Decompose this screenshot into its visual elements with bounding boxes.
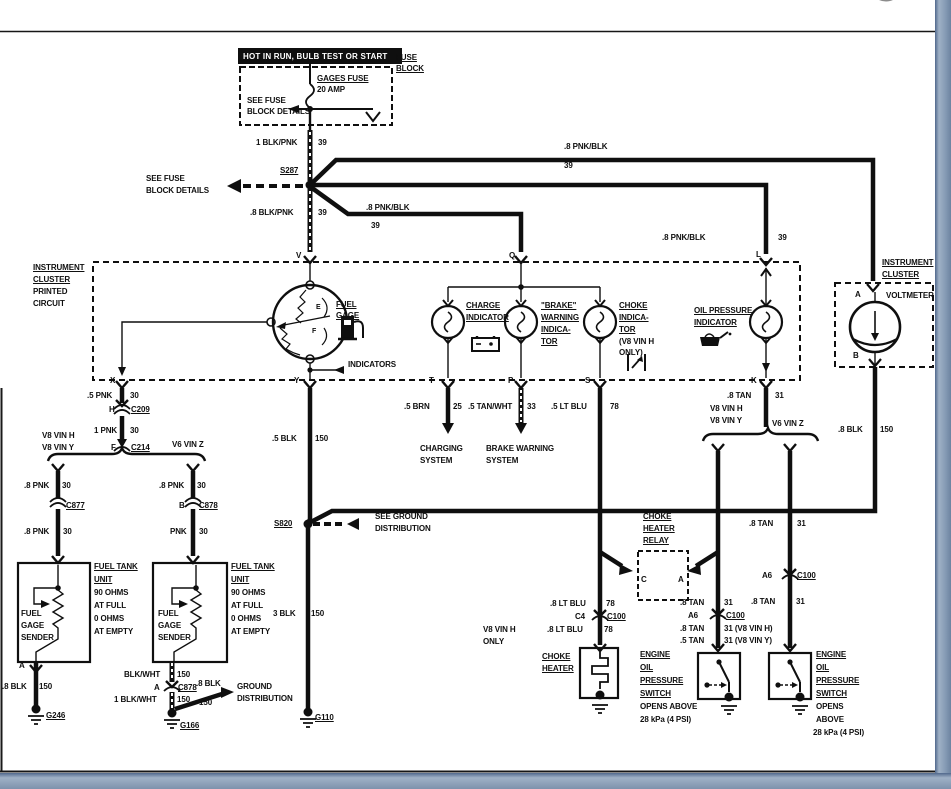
oil-can-icon [700, 332, 731, 346]
arrow-see-ground [347, 518, 359, 530]
battery-icon [472, 336, 499, 351]
wire-pnkblk-q [312, 188, 521, 252]
oil-pressure-switch-1 [698, 653, 740, 714]
arrow-relay-a [687, 564, 701, 575]
arrow-see-fuse-inner [288, 105, 299, 113]
ground-g246-symbol [28, 716, 44, 724]
voltmeter-symbol [835, 283, 933, 367]
arrow-charging-system [442, 423, 454, 434]
charge-indicator-bulb [432, 300, 464, 378]
oil-pressure-switch-2 [769, 653, 811, 714]
conn-c878b-symbol [164, 687, 180, 691]
close-icon [868, 0, 904, 18]
conn-c877-symbol [50, 498, 66, 507]
choke-heater-relay-box [638, 551, 688, 600]
arrow-ground-distribution [221, 687, 234, 698]
wiring-diagram-page: HOT IN RUN, BULB TEST OR STARTFUSEBLOCKG… [0, 0, 951, 789]
brake-indicator-bulb [505, 300, 537, 378]
fuel-tank-unit-2 [153, 563, 227, 662]
arrow-see-fuse-details [227, 179, 241, 193]
schematic [18, 48, 933, 728]
vin-split-brace-right [703, 428, 818, 441]
close-button[interactable] [868, 0, 904, 18]
choke-switch-icon [628, 354, 645, 371]
ground-g110-symbol [300, 719, 316, 727]
fuse-block-connector [366, 112, 380, 121]
fuse-symbol [306, 84, 314, 108]
banner-box [238, 48, 402, 64]
splice-s820-dot [304, 520, 313, 529]
vin-split-brace-left [48, 448, 205, 461]
choke-heater-symbol [580, 648, 618, 713]
arrow-brake-system [515, 423, 527, 434]
cluster-box [93, 262, 800, 380]
conn-c878-symbol [185, 498, 201, 507]
choke-indicator-bulb [584, 300, 616, 378]
ground-g166-symbol [164, 720, 180, 728]
oil-pressure-bulb [750, 268, 782, 378]
fuel-gauge-symbol [267, 262, 347, 381]
arrow-relay-c [619, 564, 633, 575]
wiring-svg [0, 0, 951, 789]
arrow-indicators [334, 366, 344, 374]
wire-pnkblk-l [313, 185, 766, 254]
fuel-tank-unit-1 [18, 563, 90, 662]
gas-pump-icon [338, 316, 363, 339]
window-frame [0, 0, 951, 789]
